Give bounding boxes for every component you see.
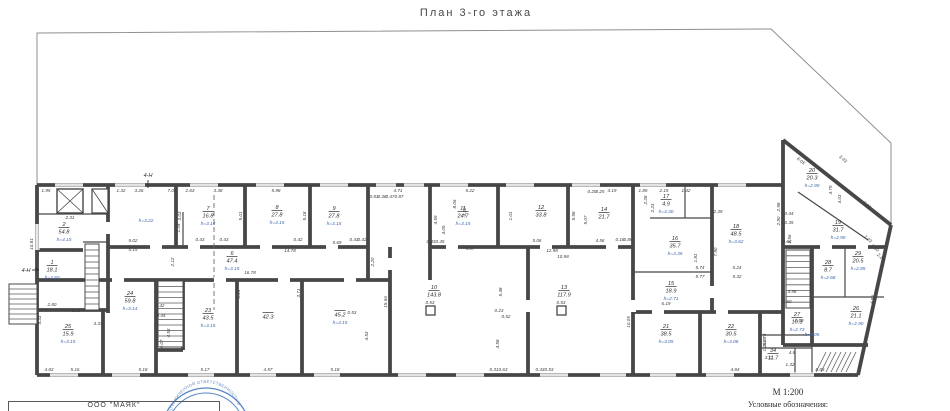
svg-text:23: 23 (204, 308, 212, 314)
svg-text:4.9: 4.9 (662, 202, 670, 208)
svg-text:8: 8 (275, 205, 279, 211)
svg-text:h=2.68: h=2.68 (821, 275, 836, 281)
svg-text:1.95: 1.95 (42, 188, 51, 193)
room-label: 1848.5h=3.62 (729, 224, 744, 245)
room-label: 2230.5h=3.08 (724, 324, 739, 345)
svg-text:h=2.90: h=2.90 (849, 321, 864, 327)
svg-text:10: 10 (431, 285, 438, 291)
svg-text:2.31: 2.31 (65, 215, 75, 220)
svg-text:1.42: 1.42 (682, 188, 691, 193)
svg-text:3.98: 3.98 (788, 289, 797, 294)
svg-text:21.7: 21.7 (598, 215, 611, 221)
svg-text:3.26: 3.26 (135, 188, 144, 193)
svg-text:2.15: 2.15 (659, 188, 669, 193)
svg-text:9: 9 (332, 206, 335, 212)
svg-text:0.23: 0.23 (495, 308, 504, 313)
svg-text:4.83: 4.83 (45, 367, 54, 372)
svg-text:0.44: 0.44 (157, 313, 166, 318)
svg-text:h=3.14: h=3.14 (123, 306, 138, 312)
svg-text:16.78: 16.78 (244, 270, 256, 275)
svg-text:3.43: 3.43 (838, 154, 848, 164)
svg-text:26: 26 (852, 306, 860, 312)
room-label: 2515.9h=3.15 (61, 324, 76, 345)
svg-text:18: 18 (733, 224, 740, 230)
svg-text:3.21: 3.21 (236, 289, 241, 298)
svg-text:5.18: 5.18 (331, 367, 340, 372)
svg-text:4.8: 4.8 (789, 350, 796, 355)
room-label: 2459.8h=3.14 (123, 291, 138, 312)
svg-text:4.03: 4.03 (837, 194, 842, 203)
svg-text:0.86: 0.86 (624, 237, 633, 242)
room-label: 2920.5h=2.85 (851, 251, 866, 272)
svg-text:h=3.15: h=3.15 (201, 323, 216, 329)
svg-text:h=3.15: h=3.15 (270, 220, 285, 226)
svg-text:12: 12 (538, 205, 545, 211)
svg-text:0.35: 0.35 (785, 220, 794, 225)
room-label: 288.7h=2.68 (821, 260, 836, 281)
svg-text:14: 14 (601, 207, 607, 213)
svg-text:1.32: 1.32 (117, 188, 126, 193)
svg-text:31.7: 31.7 (833, 228, 845, 234)
svg-text:h=3.62: h=3.62 (729, 239, 744, 245)
svg-text:2: 2 (61, 222, 66, 228)
svg-text:2.28: 2.28 (643, 195, 648, 205)
svg-text:5.07: 5.07 (466, 246, 475, 251)
svg-text:5.07: 5.07 (583, 215, 588, 224)
svg-text:2.90: 2.90 (776, 216, 781, 226)
svg-text:59.8: 59.8 (125, 299, 137, 305)
svg-text:5.17: 5.17 (201, 367, 210, 372)
svg-text:4.30: 4.30 (462, 207, 467, 216)
svg-text:14.78: 14.78 (284, 248, 296, 253)
svg-text:2.12: 2.12 (170, 257, 175, 267)
page-title: План 3-го этажа (356, 7, 596, 19)
svg-text:h=3.22: h=3.22 (139, 218, 154, 224)
svg-text:0.43: 0.43 (427, 239, 436, 244)
svg-text:4.57: 4.57 (264, 367, 273, 372)
svg-text:17: 17 (663, 194, 670, 200)
floor-plan-page: 118.1h=3.50254.8h=4.15h=3.22647.4h=3.157… (0, 0, 950, 411)
svg-text:h=3.15: h=3.15 (225, 266, 240, 272)
svg-text:34: 34 (770, 348, 776, 354)
svg-text:3.03: 3.03 (177, 211, 182, 220)
svg-text:h=3.15: h=3.15 (333, 320, 348, 326)
svg-text:0.42: 0.42 (358, 237, 367, 242)
svg-text:2.63: 2.63 (185, 188, 195, 193)
title-block: ООО "МАЯК" (8, 401, 220, 411)
svg-text:15.66: 15.66 (383, 296, 388, 308)
svg-text:4.84: 4.84 (731, 367, 740, 372)
svg-text:42.3: 42.3 (263, 315, 275, 321)
svg-text:5.01: 5.01 (238, 211, 243, 220)
svg-text:0.44: 0.44 (785, 211, 794, 216)
svg-text:0.53: 0.53 (557, 300, 566, 305)
svg-text:4-Н: 4-Н (22, 268, 31, 274)
room-label: 2138.5h=3.05 (659, 324, 674, 345)
room-label: 827.8h=3.15 (270, 205, 285, 226)
svg-text:5.69: 5.69 (333, 240, 342, 245)
svg-text:19: 19 (835, 220, 841, 226)
svg-text:2.98: 2.98 (776, 202, 781, 212)
svg-text:20: 20 (808, 168, 816, 174)
staircase (85, 244, 99, 310)
svg-text:5.32: 5.32 (733, 274, 742, 279)
svg-text:0.63: 0.63 (499, 367, 508, 372)
svg-text:47.4: 47.4 (227, 259, 238, 265)
svg-text:0.52: 0.52 (502, 314, 511, 319)
room-label: 118.1h=3.50 (45, 260, 60, 281)
svg-text:30.5: 30.5 (726, 332, 738, 338)
room-label: 42.3 (263, 313, 275, 321)
svg-text:16.8: 16.8 (203, 214, 215, 220)
svg-text:2.39: 2.39 (713, 209, 723, 214)
room-label: 647.4h=3.15 (225, 251, 240, 272)
svg-text:21.1: 21.1 (850, 314, 862, 320)
svg-text:1.34: 1.34 (176, 223, 181, 232)
svg-text:4.33: 4.33 (37, 315, 42, 324)
svg-text:28: 28 (824, 260, 832, 266)
svg-text:0.43: 0.43 (196, 237, 205, 242)
svg-text:1: 1 (50, 260, 53, 266)
svg-text:1.85: 1.85 (639, 188, 648, 193)
svg-text:6: 6 (230, 251, 234, 257)
room-label: 2343.5h=3.15 (201, 308, 216, 329)
svg-text:5.18: 5.18 (139, 367, 148, 372)
svg-text:54.8: 54.8 (59, 230, 71, 236)
svg-text:15: 15 (668, 281, 675, 287)
svg-text:5.02: 5.02 (129, 238, 138, 243)
svg-text:4.58: 4.58 (495, 339, 500, 348)
svg-text:4.79: 4.79 (828, 185, 833, 194)
svg-text:5.74: 5.74 (696, 265, 705, 270)
svg-text:3.62: 3.62 (72, 308, 81, 313)
svg-text:25: 25 (64, 324, 72, 330)
svg-text:h=2.73: h=2.73 (790, 327, 805, 333)
svg-text:1.43: 1.43 (863, 234, 873, 244)
svg-text:35.7: 35.7 (670, 244, 682, 250)
svg-text:h=2.90: h=2.90 (805, 183, 820, 189)
svg-text:5.24: 5.24 (733, 265, 742, 270)
svg-text:h=3.08: h=3.08 (724, 339, 739, 345)
svg-text:16: 16 (672, 236, 679, 242)
svg-text:4.53: 4.53 (364, 331, 369, 340)
svg-text:8.7: 8.7 (824, 268, 833, 274)
room-label: 13117.9 (557, 285, 571, 299)
svg-text:0.53: 0.53 (426, 300, 435, 305)
svg-text:33.8: 33.8 (536, 213, 548, 219)
room-label: 1233.8 (536, 205, 548, 219)
svg-text:29: 29 (854, 251, 861, 257)
svg-text:20.3: 20.3 (806, 176, 819, 182)
svg-text:13: 13 (561, 285, 568, 291)
svg-text:1.32: 1.32 (786, 362, 795, 367)
svg-text:4.05: 4.05 (441, 225, 446, 234)
room-label: 2621.1h=2.90 (849, 306, 864, 327)
svg-text:4.37: 4.37 (94, 321, 103, 326)
svg-text:h=4.30: h=4.30 (659, 209, 674, 215)
svg-text:0.45: 0.45 (436, 239, 445, 244)
svg-text:3.60: 3.60 (783, 299, 792, 304)
svg-text:10.98: 10.98 (557, 254, 569, 259)
svg-text:27.8: 27.8 (328, 214, 341, 220)
svg-text:0.43: 0.43 (220, 237, 229, 242)
svg-text:5.98: 5.98 (272, 188, 281, 193)
svg-text:5.48: 5.48 (498, 287, 503, 296)
svg-text:4.59: 4.59 (433, 215, 438, 224)
svg-text:7.90: 7.90 (713, 247, 718, 256)
svg-text:3.38: 3.38 (214, 188, 223, 193)
service-shaft (92, 189, 108, 213)
svg-text:8.06: 8.06 (452, 199, 457, 208)
svg-text:117.9: 117.9 (557, 293, 571, 299)
svg-text:4.56: 4.56 (596, 238, 605, 243)
svg-text:12.98: 12.98 (546, 248, 558, 253)
svg-text:0.53: 0.53 (545, 367, 554, 372)
svg-text:27.8: 27.8 (271, 213, 284, 219)
svg-text:0.42: 0.42 (294, 237, 303, 242)
svg-text:h=3.50: h=3.50 (45, 275, 60, 281)
svg-text:3.71: 3.71 (296, 288, 301, 297)
svg-text:5.18: 5.18 (302, 211, 307, 220)
room-label: 716.8h=3.16 (201, 206, 216, 227)
svg-text:4.71: 4.71 (394, 188, 403, 193)
svg-text:h=3.15: h=3.15 (61, 339, 76, 345)
svg-text:h=2.90: h=2.90 (831, 235, 846, 241)
room-label: h=3.22 (139, 218, 154, 224)
room-label: 1518.9h=2.71 (664, 281, 679, 302)
svg-text:10.81: 10.81 (29, 238, 34, 250)
svg-text:3.11: 3.11 (765, 355, 774, 360)
svg-text:h=3.15: h=3.15 (327, 221, 342, 227)
svg-text:10.05: 10.05 (626, 316, 631, 328)
svg-text:1.74: 1.74 (762, 333, 767, 342)
svg-text:h=3.16: h=3.16 (201, 221, 216, 227)
svg-text:0.47: 0.47 (386, 194, 395, 199)
svg-text:45.2: 45.2 (335, 313, 347, 319)
svg-text:0.42: 0.42 (156, 303, 165, 308)
svg-text:18.1: 18.1 (47, 268, 58, 274)
svg-text:1.24: 1.24 (762, 342, 767, 351)
svg-text:21: 21 (662, 324, 669, 330)
svg-text:2.50: 2.50 (794, 318, 804, 323)
svg-text:5.16: 5.16 (71, 367, 80, 372)
staircase (9, 284, 37, 324)
svg-text:18.9: 18.9 (666, 289, 677, 295)
svg-text:2.23: 2.23 (650, 203, 655, 213)
svg-text:h=3.35: h=3.35 (668, 251, 683, 257)
svg-text:38.5: 38.5 (661, 332, 673, 338)
svg-text:5.15: 5.15 (129, 247, 138, 252)
room-label: 927.8h=3.15 (327, 206, 342, 227)
svg-text:5.22: 5.22 (466, 188, 475, 193)
room-label: 1421.7 (598, 207, 611, 221)
svg-text:0.31: 0.31 (490, 367, 499, 372)
svg-text:0.25: 0.25 (596, 189, 605, 194)
elevator-shaft (57, 189, 83, 213)
svg-text:2.56: 2.56 (787, 234, 792, 244)
svg-text:20.5: 20.5 (852, 259, 865, 265)
svg-text:15.9: 15.9 (63, 332, 74, 338)
room-label: 10143.8 (427, 285, 442, 299)
svg-text:22: 22 (727, 324, 735, 330)
svg-text:4.53: 4.53 (166, 328, 171, 337)
svg-text:6.19: 6.19 (662, 301, 671, 306)
svg-text:8.05: 8.05 (816, 367, 825, 372)
room-label: 2020.3h=2.90 (805, 168, 820, 189)
svg-text:5.98: 5.98 (571, 211, 576, 220)
room-label: 174.9h=4.30 (659, 194, 674, 215)
svg-text:5.77: 5.77 (696, 274, 705, 279)
svg-text:5.06: 5.06 (533, 238, 542, 243)
svg-text:0.53: 0.53 (348, 310, 357, 315)
company-name: ООО "МАЯК" (88, 402, 141, 409)
svg-text:0.87: 0.87 (395, 194, 404, 199)
svg-text:2.80: 2.80 (47, 302, 57, 307)
svg-text:7.03: 7.03 (168, 188, 177, 193)
svg-text:7: 7 (206, 206, 210, 212)
room-label: 1635.7h=3.35 (668, 236, 683, 257)
svg-text:h=3.05: h=3.05 (805, 332, 820, 338)
svg-text:0.43: 0.43 (536, 367, 545, 372)
legend-label: Условные обозначения: (703, 400, 873, 409)
room-label: 45.2h=3.15 (333, 311, 348, 327)
svg-text:h=2.85: h=2.85 (851, 266, 866, 272)
svg-text:24: 24 (126, 291, 133, 297)
svg-text:4.07: 4.07 (159, 339, 164, 348)
svg-text:h=3.05: h=3.05 (659, 339, 674, 345)
svg-text:h=3.15: h=3.15 (456, 221, 471, 227)
svg-text:1.81: 1.81 (693, 253, 698, 262)
room-label: h=3.05 (805, 332, 820, 338)
svg-text:h=4.15: h=4.15 (57, 237, 72, 243)
svg-text:43.5: 43.5 (203, 316, 215, 322)
svg-text:1.01: 1.01 (508, 211, 513, 220)
svg-text:4-Н: 4-Н (144, 173, 153, 179)
svg-text:2.20: 2.20 (370, 257, 375, 267)
column (557, 306, 566, 315)
scale-label: М 1:200 (733, 387, 843, 397)
column (426, 306, 435, 315)
room-label: 254.8h=4.15 (57, 222, 72, 243)
svg-text:48.5: 48.5 (731, 232, 743, 238)
svg-text:4.19: 4.19 (608, 188, 617, 193)
floor-plan: 118.1h=3.50254.8h=4.15h=3.22647.4h=3.157… (0, 0, 950, 411)
doors-layer (105, 222, 868, 315)
svg-text:143.8: 143.8 (427, 293, 442, 299)
